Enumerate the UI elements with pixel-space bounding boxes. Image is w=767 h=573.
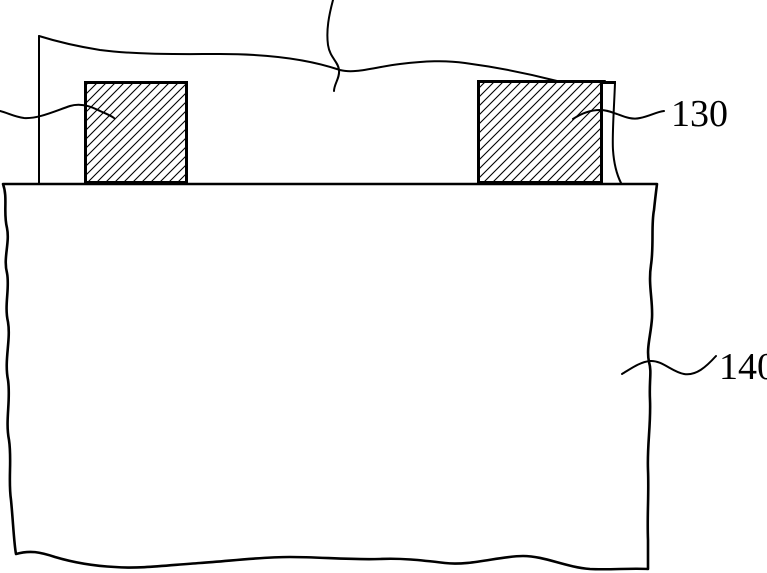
- top-break-leader-line: [327, 0, 339, 91]
- hatched-block-right: [479, 82, 602, 183]
- layer-top-boundary-wavy-line: [39, 36, 605, 81]
- callout-140-label: 140: [719, 346, 767, 388]
- callout-130-label: 130: [671, 93, 728, 135]
- diagram-svg: 130 140: [0, 0, 767, 573]
- hatched-block-left: [86, 83, 187, 183]
- layer-right-edge-line: [613, 83, 621, 183]
- substrate-outline: [3, 184, 657, 569]
- figure-canvas: 130 140: [0, 0, 767, 573]
